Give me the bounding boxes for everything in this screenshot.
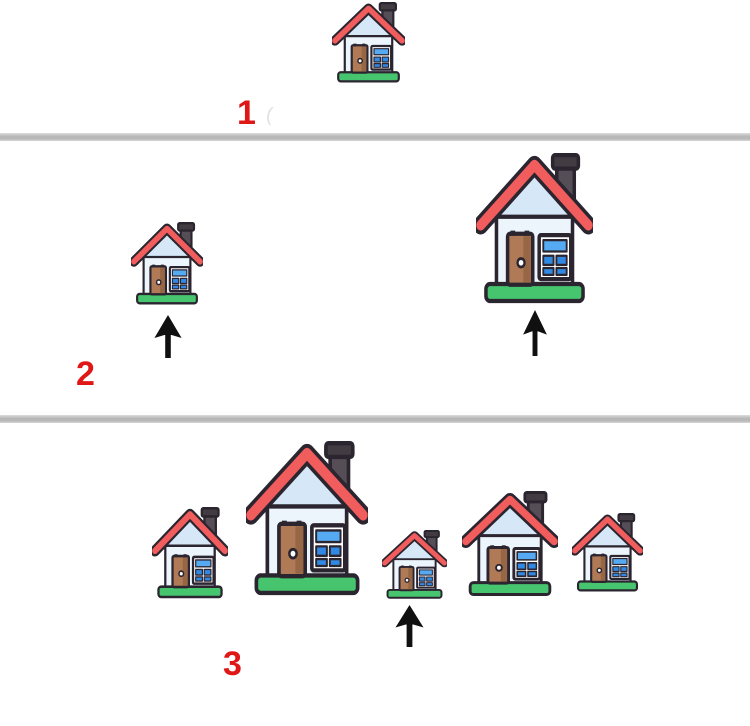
house-icon <box>152 507 228 600</box>
section-label-1: 1 <box>237 96 256 130</box>
section-label-2: 2 <box>76 357 95 391</box>
house-icon <box>476 153 593 306</box>
arrow-up-icon <box>393 605 426 647</box>
worksheet-canvas: 1 2 3 ( <box>0 0 750 726</box>
section-divider <box>0 133 750 141</box>
house-icon <box>246 441 368 598</box>
house-icon <box>332 2 405 84</box>
faint-smudge: ( <box>264 104 274 128</box>
arrow-up-icon <box>521 310 549 356</box>
arrow-up-icon <box>152 315 184 358</box>
house-icon <box>572 513 643 593</box>
section-label-3: 3 <box>223 647 242 681</box>
house-icon <box>462 491 558 598</box>
house-icon <box>382 530 447 600</box>
house-icon <box>131 222 203 306</box>
section-divider <box>0 415 750 423</box>
